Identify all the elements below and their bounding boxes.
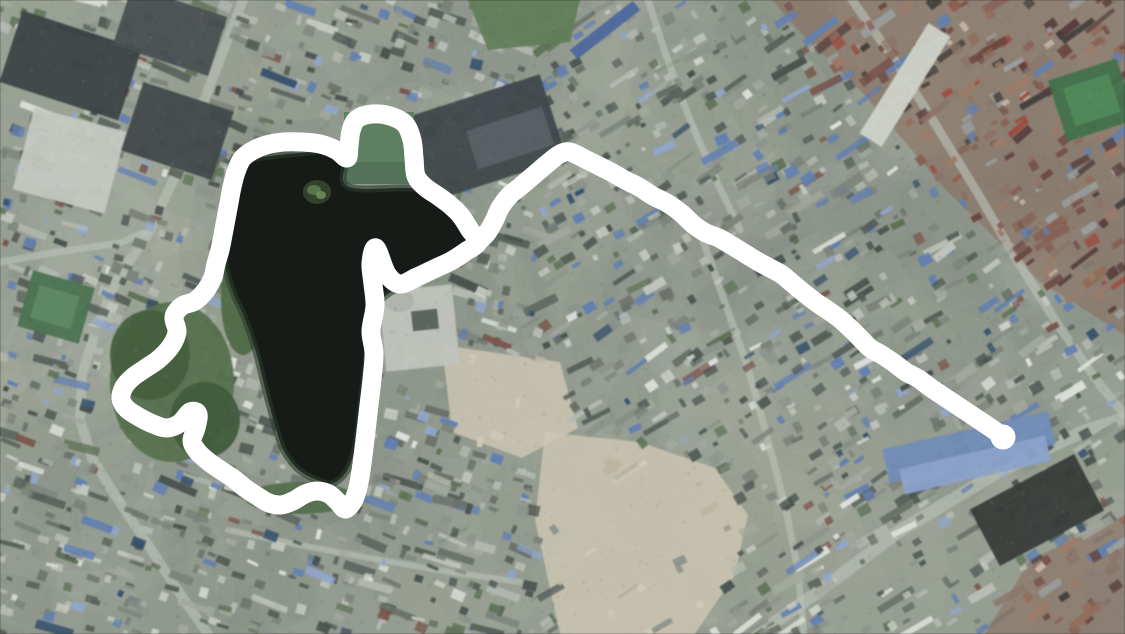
lake-island-trees-2 — [316, 191, 326, 199]
route-end-marker — [991, 425, 1016, 450]
annotation-overlay — [0, 0, 1125, 634]
lake-green-notch-shade — [344, 162, 414, 184]
satellite-map[interactable] — [0, 0, 1125, 634]
route-annotation-line — [478, 152, 1001, 435]
